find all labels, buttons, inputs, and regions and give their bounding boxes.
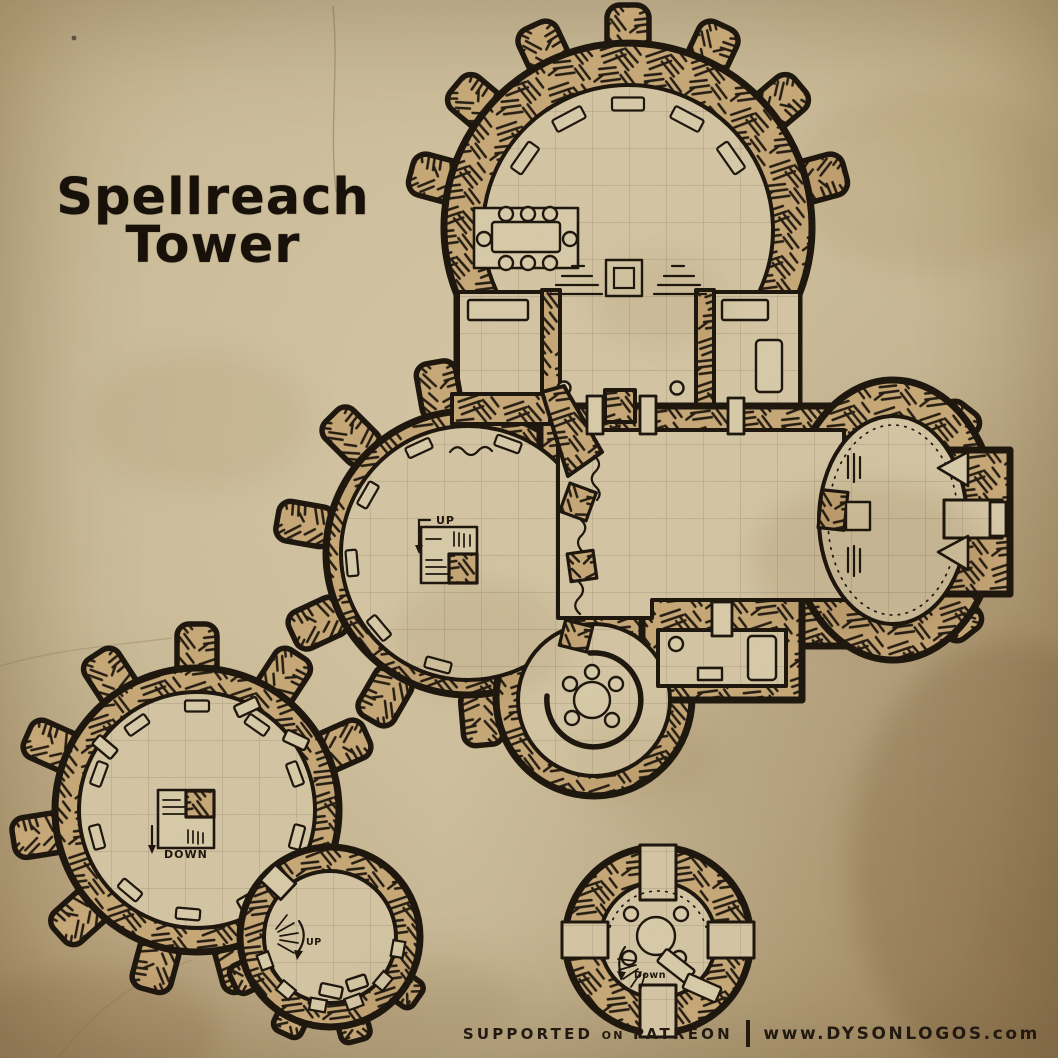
paper-grain (0, 0, 1058, 1058)
map-title-line2: Tower (50, 222, 376, 270)
footer-credits: SUPPORTED ON PATREON www.DYSONLOGOS.com (463, 1020, 1040, 1047)
supported-word: SUPPORTED (463, 1025, 593, 1043)
patreon-word: PATREON (633, 1025, 733, 1043)
dungeon-map: UP (0, 0, 1058, 1058)
patreon-credit: SUPPORTED ON PATREON (463, 1025, 733, 1043)
parchment-page: UP (0, 0, 1058, 1058)
on-word: ON (602, 1029, 625, 1042)
map-title: Spellreach Tower (50, 174, 376, 270)
website-url: www.DYSONLOGOS.com (763, 1024, 1040, 1044)
map-title-line1: Spellreach (50, 174, 376, 222)
divider-bar (746, 1020, 751, 1047)
